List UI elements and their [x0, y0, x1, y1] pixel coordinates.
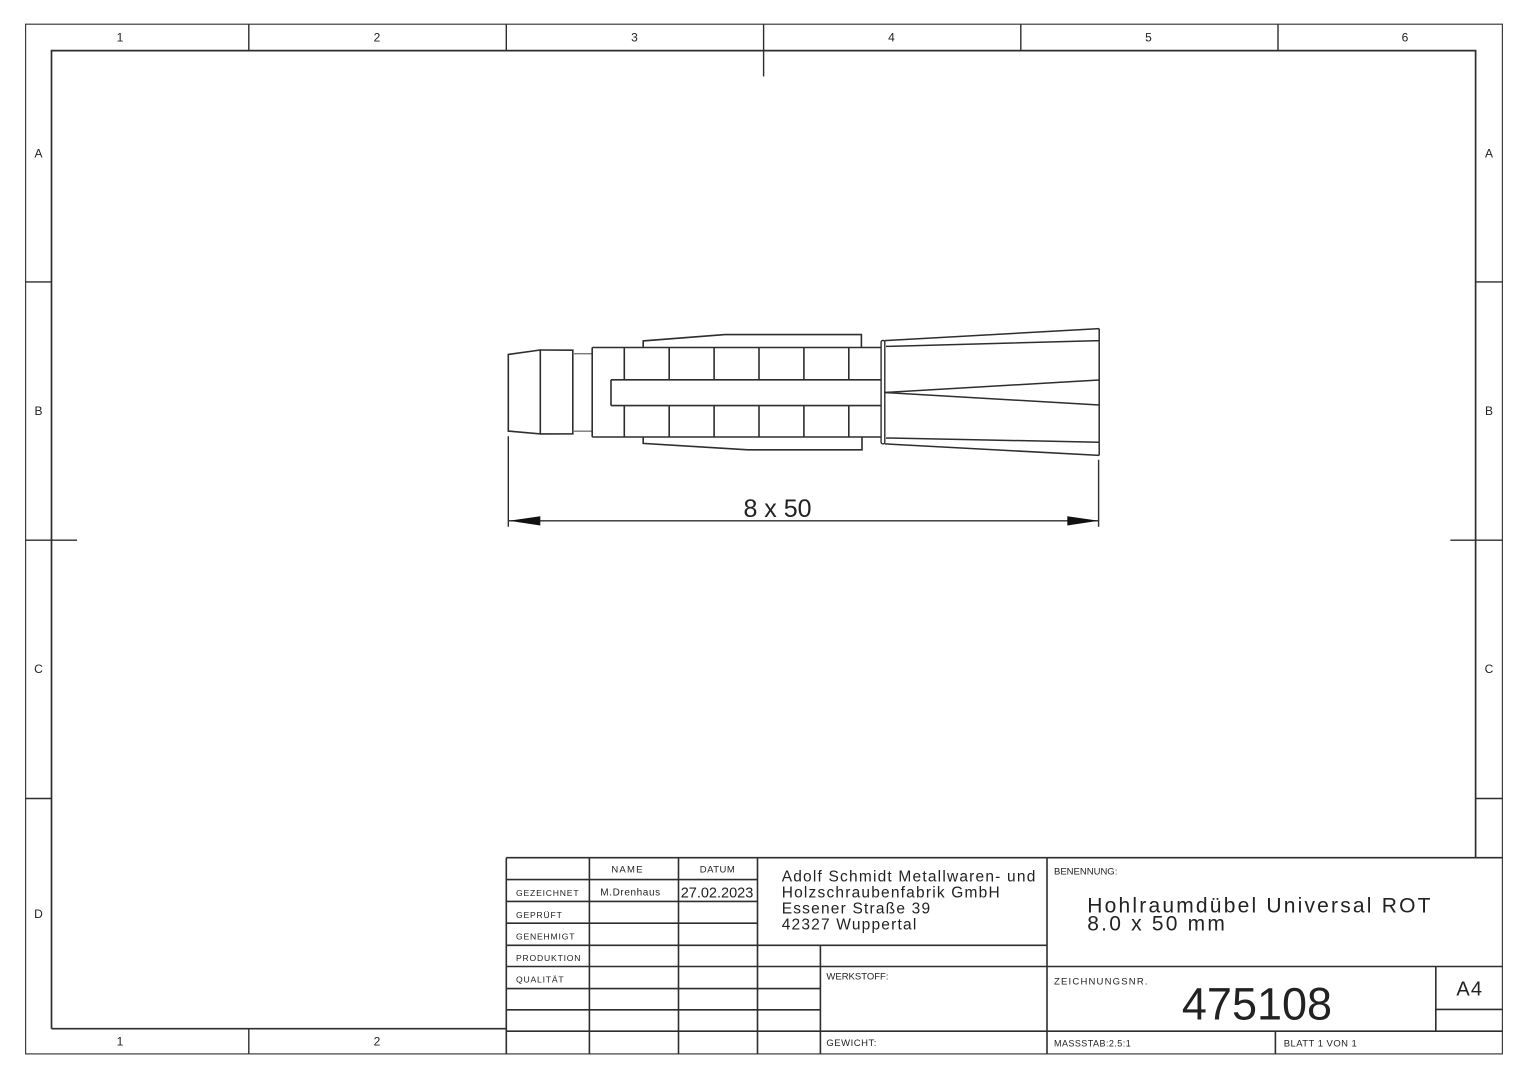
- svg-text:GENEHMIGT: GENEHMIGT: [516, 932, 575, 942]
- svg-text:2: 2: [374, 1035, 381, 1049]
- svg-text:GEPRÜFT: GEPRÜFT: [516, 910, 563, 920]
- svg-text:2: 2: [374, 31, 381, 45]
- svg-text:A: A: [34, 146, 42, 160]
- svg-text:Holzschraubenfabrik GmbH: Holzschraubenfabrik GmbH: [782, 885, 1001, 902]
- svg-text:3: 3: [631, 31, 638, 45]
- svg-text:1: 1: [117, 31, 124, 45]
- svg-text:M.Drenhaus: M.Drenhaus: [600, 888, 660, 899]
- svg-text:DATUM: DATUM: [700, 865, 736, 876]
- svg-text:Adolf Schmidt Metallwaren- und: Adolf Schmidt Metallwaren- und: [782, 869, 1037, 886]
- svg-text:8.0 x 50 mm: 8.0 x 50 mm: [1087, 913, 1227, 936]
- svg-text:6: 6: [1402, 31, 1409, 45]
- svg-text:475108: 475108: [1182, 978, 1332, 1029]
- svg-text:42327 Wuppertal: 42327 Wuppertal: [782, 917, 918, 934]
- svg-text:WERKSTOFF:: WERKSTOFF:: [826, 972, 888, 983]
- svg-text:C: C: [34, 662, 43, 676]
- svg-text:GEWICHT:: GEWICHT:: [826, 1038, 876, 1049]
- svg-text:C: C: [1485, 662, 1494, 676]
- svg-text:5: 5: [1145, 31, 1152, 45]
- svg-text:4: 4: [888, 31, 895, 45]
- svg-text:B: B: [34, 404, 42, 418]
- svg-text:D: D: [34, 907, 43, 921]
- svg-text:NAME: NAME: [611, 865, 643, 876]
- svg-text:8 x 50: 8 x 50: [743, 495, 811, 523]
- svg-text:GEZEICHNET: GEZEICHNET: [516, 888, 579, 898]
- svg-text:A4: A4: [1456, 979, 1483, 1001]
- svg-text:PRODUKTION: PRODUKTION: [516, 953, 581, 963]
- svg-text:ZEICHNUNGSNR.: ZEICHNUNGSNR.: [1054, 977, 1149, 988]
- svg-text:QUALITÄT: QUALITÄT: [516, 975, 564, 985]
- svg-text:BENENNUNG:: BENENNUNG:: [1054, 867, 1117, 878]
- svg-text:A: A: [1485, 146, 1493, 160]
- svg-text:MASSSTAB:2.5:1: MASSSTAB:2.5:1: [1054, 1039, 1131, 1049]
- svg-text:27.02.2023: 27.02.2023: [681, 886, 754, 902]
- svg-text:B: B: [1485, 404, 1493, 418]
- svg-text:1: 1: [117, 1035, 124, 1049]
- svg-text:Essener Straße 39: Essener Straße 39: [782, 901, 932, 918]
- svg-text:BLATT 1 VON 1: BLATT 1 VON 1: [1284, 1039, 1358, 1050]
